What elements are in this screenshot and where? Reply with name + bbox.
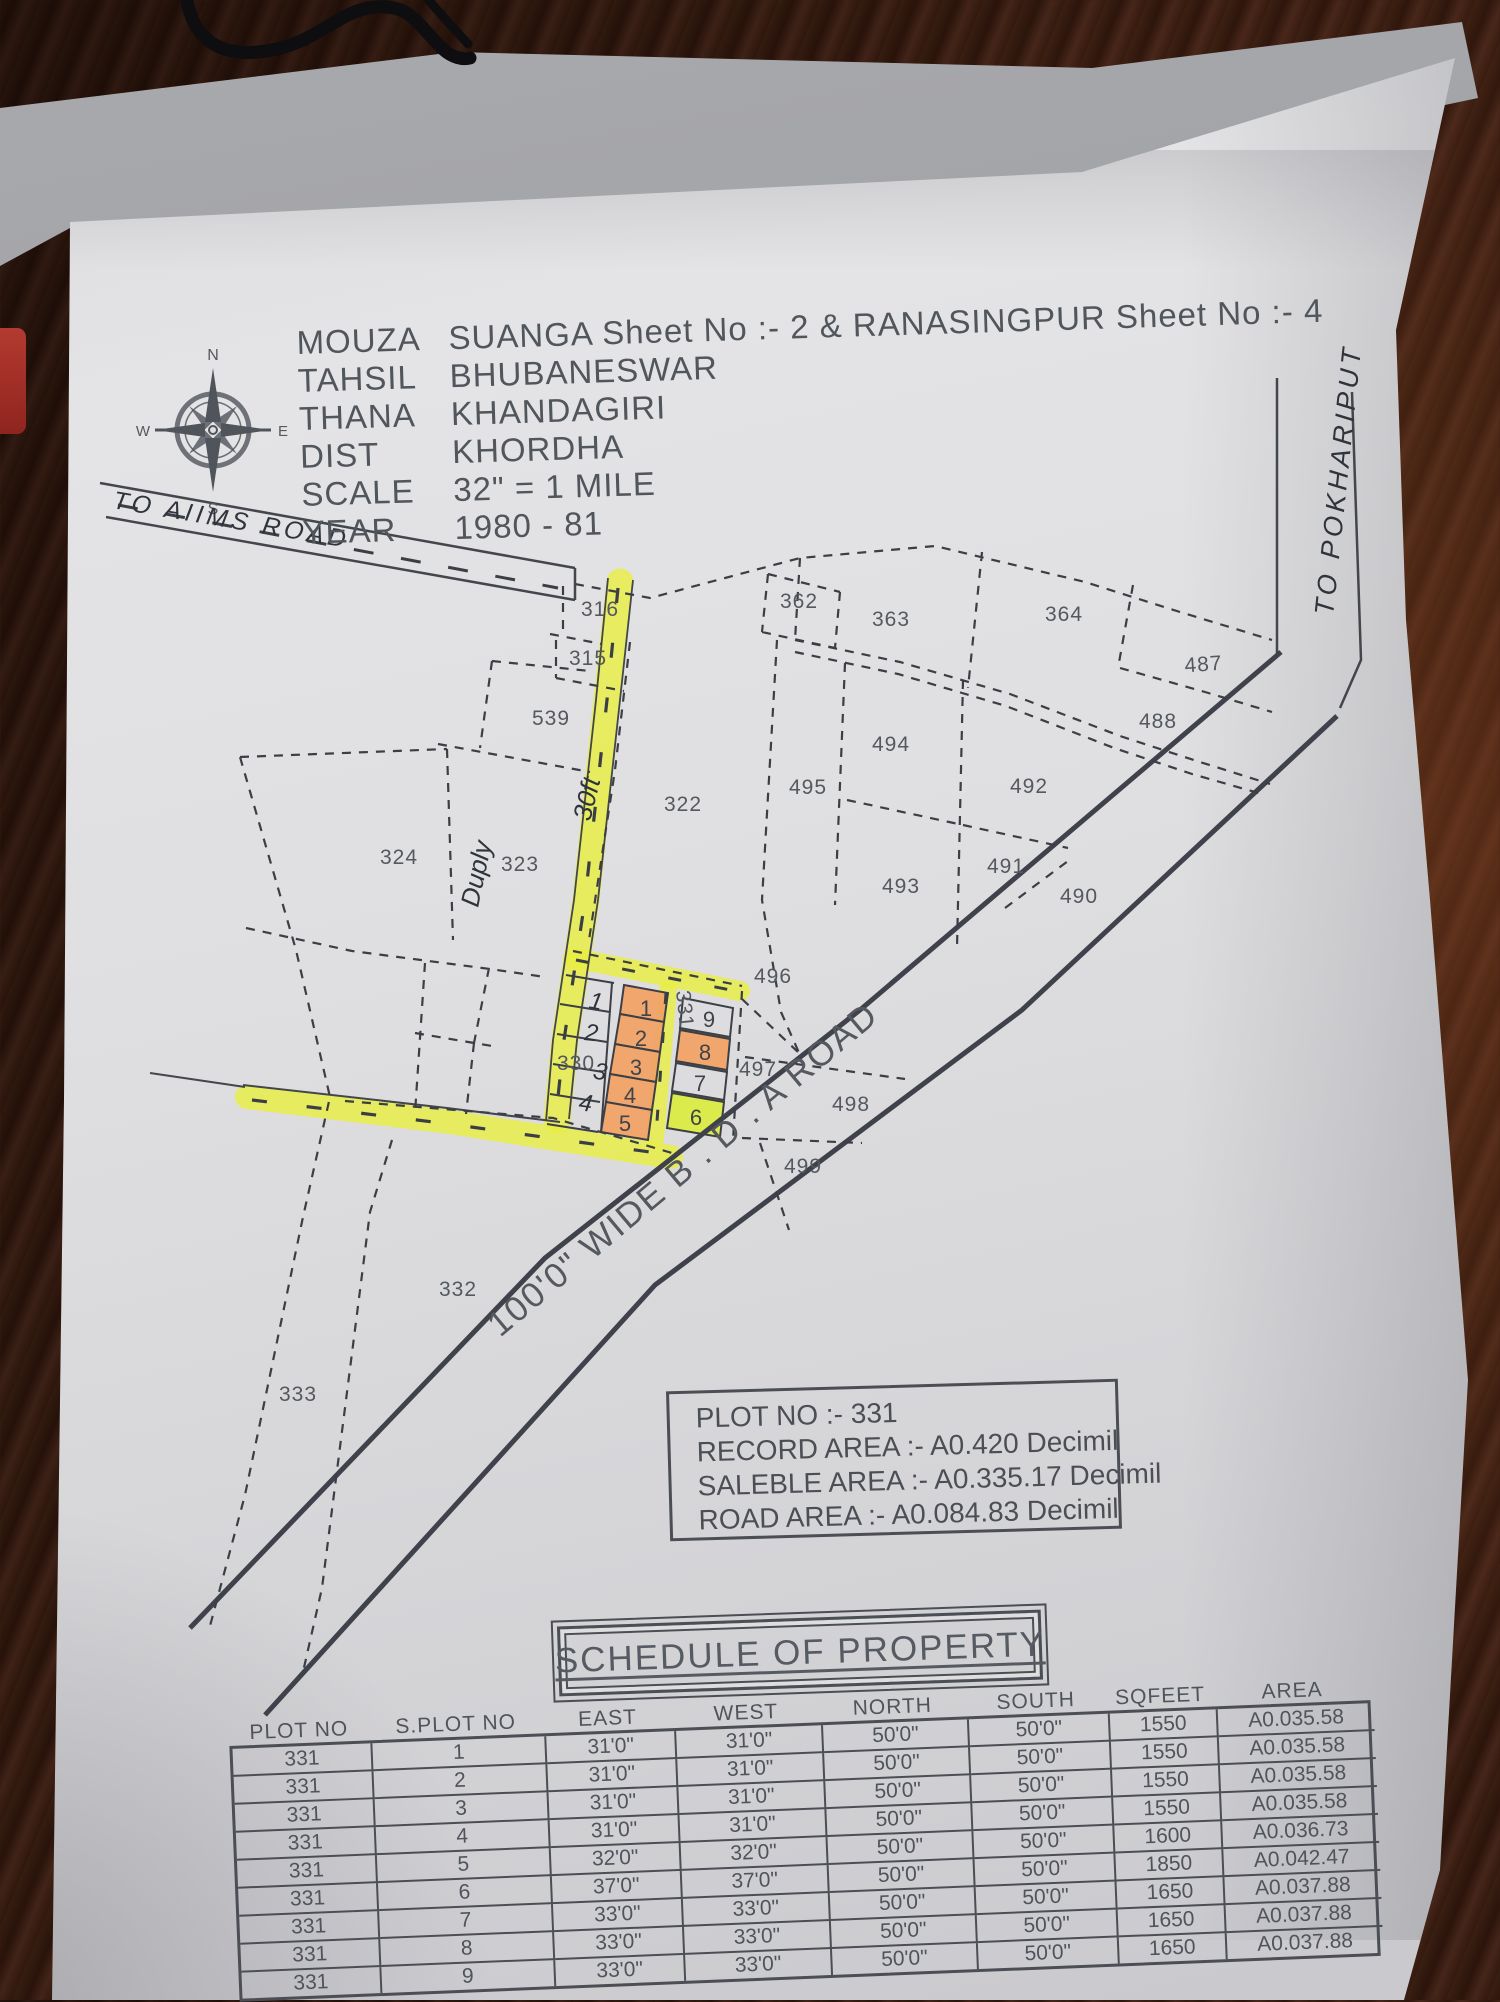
subplot-number: 2 xyxy=(635,1026,647,1051)
table-cell: 1650 xyxy=(1118,1905,1227,1937)
map-title-block: MOUZASUANGA Sheet No :- 2 & RANASINGPUR … xyxy=(296,292,1330,552)
handwritten-mark: 1 xyxy=(587,987,605,1016)
title-label: THANA xyxy=(298,395,451,438)
duply-annotation: Duply xyxy=(455,836,499,909)
schedule-table: PLOT NO S.PLOT NO EAST WEST NORTH SOUTH … xyxy=(228,1666,1381,2002)
plot-label: 496 xyxy=(754,965,792,988)
column-header: EAST xyxy=(542,1694,673,1733)
column-header: SOUTH xyxy=(964,1677,1106,1717)
table-cell: 1850 xyxy=(1115,1849,1224,1881)
table-cell: 1600 xyxy=(1114,1821,1223,1853)
subplot-number: 4 xyxy=(624,1083,636,1108)
handwritten-mark: 4 xyxy=(577,1089,594,1118)
column-header: AREA xyxy=(1213,1666,1370,1706)
plot-label: 333 xyxy=(279,1383,317,1406)
subplot-number: 5 xyxy=(619,1111,631,1136)
plot-label: 331 xyxy=(671,989,698,1029)
plot-label: 322 xyxy=(664,793,702,816)
title-value: 1980 - 81 xyxy=(454,504,604,547)
table-cell: 1550 xyxy=(1112,1765,1221,1797)
subplot-number: 6 xyxy=(690,1105,702,1130)
column-header: PLOT NO xyxy=(228,1706,369,1746)
plot-label: 490 xyxy=(1060,885,1098,908)
plot-label: 499 xyxy=(784,1155,822,1178)
compass-w-label: W xyxy=(136,423,151,440)
plot-label: 491 xyxy=(987,855,1025,878)
plot-label: 498 xyxy=(832,1093,870,1116)
subplot-number: 1 xyxy=(640,996,652,1021)
subplot-number: 8 xyxy=(699,1040,711,1065)
plot-label: 324 xyxy=(380,846,418,869)
title-label: MOUZA xyxy=(296,319,449,362)
title-value: KHORDHA xyxy=(452,428,625,471)
table-cell: 331 xyxy=(241,1967,382,1999)
plot-label: 316 xyxy=(581,598,619,621)
plot-label: 495 xyxy=(789,776,827,799)
bda-road xyxy=(190,652,1337,1715)
title-label: SCALE xyxy=(301,471,454,514)
schedule-table-body: 331131'0"31'0"50'0"50'0"1550A0.035.58 33… xyxy=(229,1700,1380,2002)
plot-label: 539 xyxy=(532,707,570,730)
table-cell: 1650 xyxy=(1119,1933,1228,1963)
plot-label: 363 xyxy=(872,608,910,631)
title-label: YEAR xyxy=(302,509,455,552)
plot-label: 494 xyxy=(872,733,910,756)
plot-label: 492 xyxy=(1010,775,1048,798)
subplot-number: 9 xyxy=(703,1007,715,1032)
table-cell: 50'0" xyxy=(978,1937,1120,1969)
compass-n-label: N xyxy=(207,347,219,364)
plot-label: 487 xyxy=(1184,652,1224,678)
plot-label: 364 xyxy=(1045,603,1083,626)
plot-number-labels: 316 315 539 322 324 323 495 362 363 364 … xyxy=(279,590,1223,1406)
title-value: KHANDAGIRI xyxy=(450,388,666,433)
table-cell: 1550 xyxy=(1110,1709,1219,1741)
plot-label: 488 xyxy=(1139,710,1177,733)
plot-label: 332 xyxy=(439,1278,477,1301)
yellow-highlight-roads xyxy=(247,582,740,1157)
subplot-number: 3 xyxy=(630,1055,642,1080)
column-header: NORTH xyxy=(819,1682,966,1722)
column-header: SQFEET xyxy=(1105,1672,1214,1710)
table-cell: 1550 xyxy=(1113,1793,1222,1825)
column-header: S.PLOT NO xyxy=(368,1699,543,1740)
handwritten-mark: 2 xyxy=(582,1019,599,1047)
plot-label: 362 xyxy=(780,590,818,613)
plot-label: 330 xyxy=(557,1052,595,1075)
column-header: WEST xyxy=(672,1688,820,1728)
title-label: TAHSIL xyxy=(297,357,450,400)
plot-label: 315 xyxy=(569,647,607,670)
title-value: 32" = 1 MILE xyxy=(453,465,657,509)
table-cell: 33'0" xyxy=(555,1955,686,1986)
compass-e-label: E xyxy=(278,423,288,440)
photographed-survey-document: N S W E 316 315 539 322 324 323 495 362 … xyxy=(0,0,1500,2000)
plot-label: 323 xyxy=(501,853,539,876)
plot-label: 493 xyxy=(882,875,920,898)
title-label: DIST xyxy=(300,433,453,476)
plot-info-box: PLOT NO :- 331 RECORD AREA :- A0.420 Dec… xyxy=(666,1379,1122,1542)
table-cell: 33'0" xyxy=(685,1949,833,1981)
table-cell: 50'0" xyxy=(832,1943,979,1975)
cable-icon xyxy=(186,0,470,59)
subplot-number: 7 xyxy=(694,1071,706,1096)
table-cell: 1550 xyxy=(1111,1737,1220,1769)
table-cell: 9 xyxy=(381,1960,556,1993)
table-cell: A0.037.88 xyxy=(1227,1927,1384,1959)
table-cell: 1650 xyxy=(1117,1877,1226,1909)
